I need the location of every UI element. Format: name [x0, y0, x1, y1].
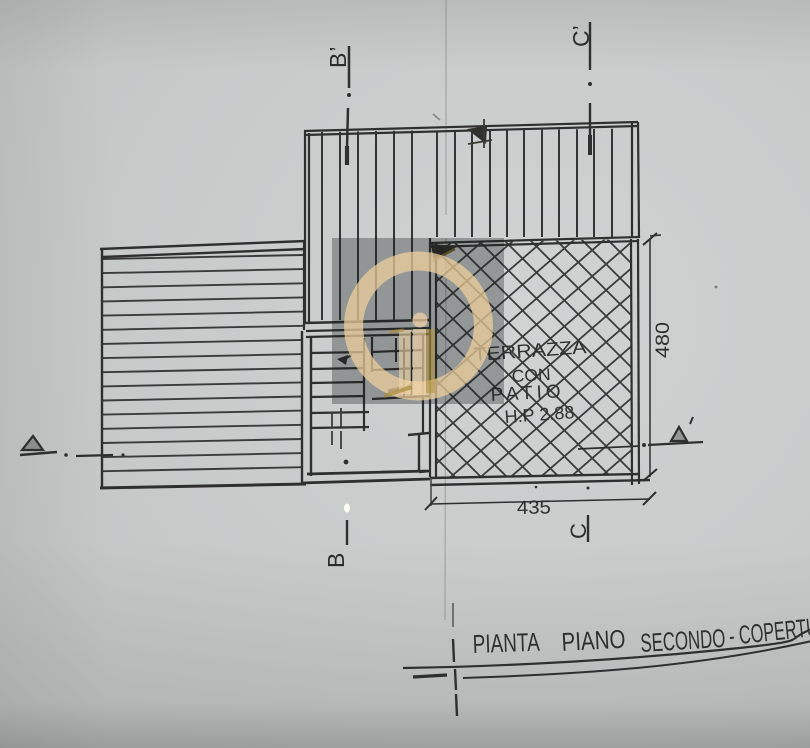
svg-text:SECONDO: SECONDO [640, 623, 727, 658]
svg-text:B’: B’ [325, 46, 351, 68]
svg-text:PIANTA: PIANTA [472, 627, 540, 659]
svg-text:B: B [323, 553, 349, 568]
svg-text:PIANO: PIANO [561, 624, 626, 657]
svg-text:C: C [566, 523, 591, 539]
svg-text:480: 480 [653, 322, 674, 358]
svg-text:C’: C’ [568, 25, 594, 47]
svg-text:435: 435 [517, 497, 551, 519]
